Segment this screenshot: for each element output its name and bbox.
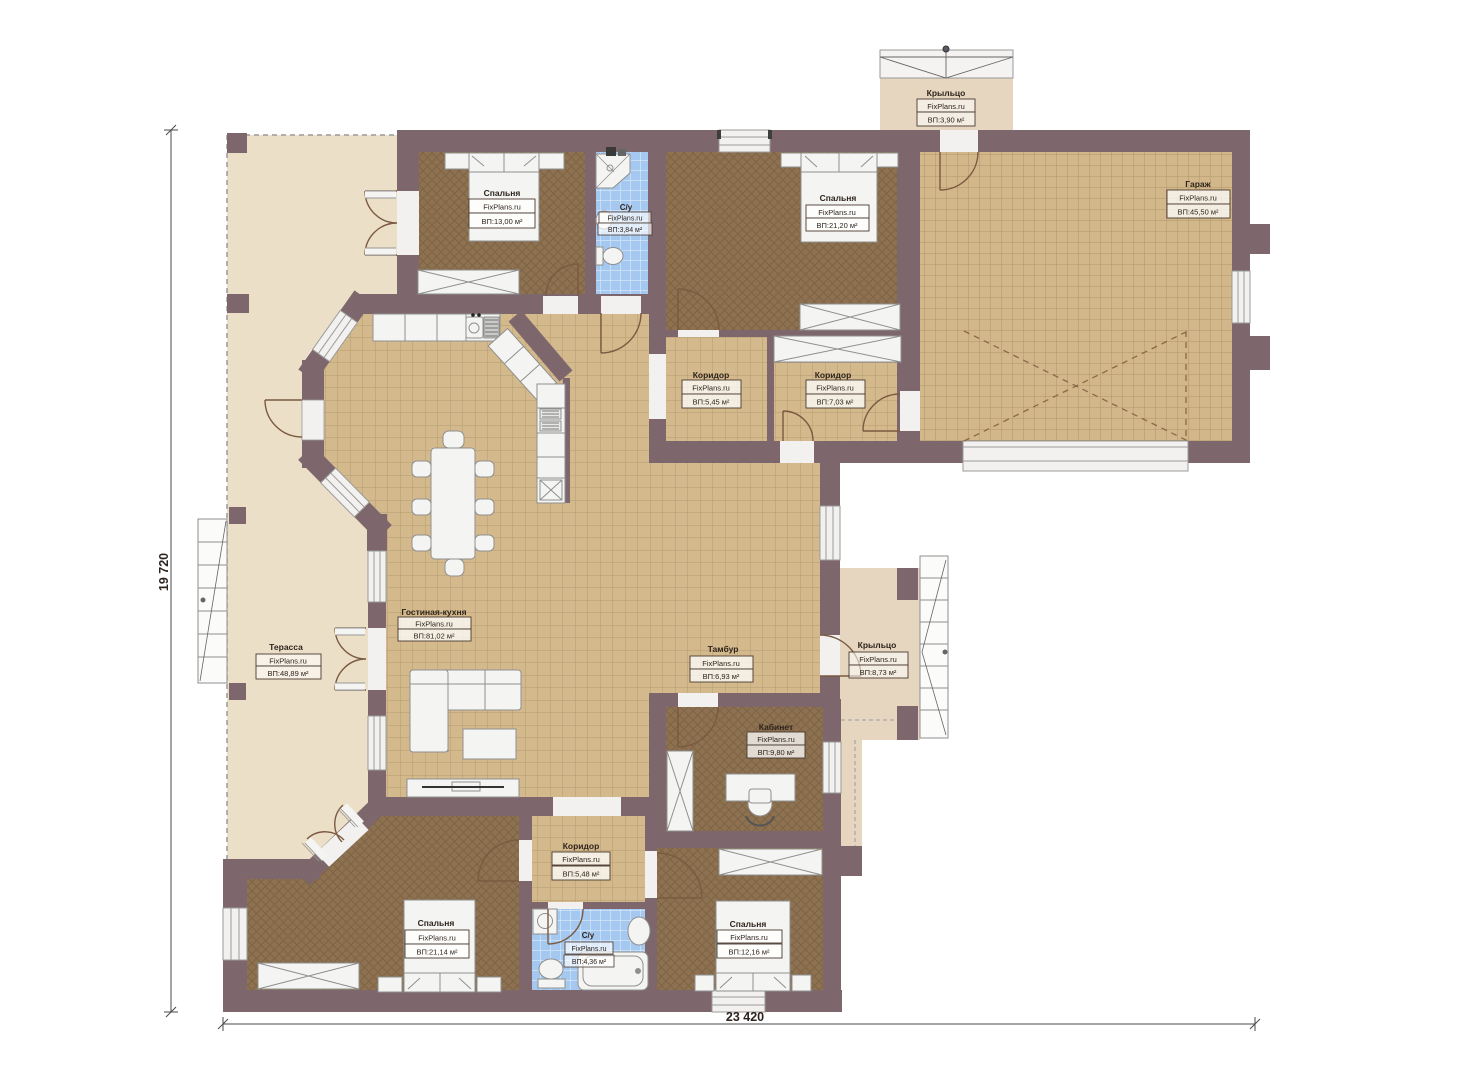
svg-text:ВП:3,90 м²: ВП:3,90 м² [928, 116, 965, 125]
svg-text:ВП:4,36 м²: ВП:4,36 м² [572, 959, 607, 966]
svg-text:FixPlans.ru: FixPlans.ru [607, 216, 642, 223]
svg-text:23 420: 23 420 [726, 1010, 764, 1024]
svg-text:ВП:7,03 м²: ВП:7,03 м² [817, 398, 854, 407]
svg-text:ВП:13,00 м²: ВП:13,00 м² [482, 217, 523, 226]
svg-text:С/у: С/у [620, 203, 633, 212]
svg-text:FixPlans.ru: FixPlans.ru [927, 102, 965, 111]
svg-text:ВП:45,50 м²: ВП:45,50 м² [1178, 208, 1219, 217]
svg-text:FixPlans.ru: FixPlans.ru [1179, 194, 1217, 203]
svg-text:FixPlans.ru: FixPlans.ru [562, 855, 600, 864]
svg-text:Коридор: Коридор [693, 370, 730, 380]
svg-text:FixPlans.ru: FixPlans.ru [818, 208, 856, 217]
svg-text:ВП:5,45 м²: ВП:5,45 м² [693, 398, 730, 407]
svg-text:С/у: С/у [582, 931, 595, 940]
svg-text:FixPlans.ru: FixPlans.ru [859, 655, 897, 664]
svg-text:FixPlans.ru: FixPlans.ru [816, 384, 854, 393]
svg-text:Терасса: Терасса [269, 642, 303, 652]
svg-text:FixPlans.ru: FixPlans.ru [269, 657, 307, 666]
svg-text:Тамбур: Тамбур [708, 644, 739, 654]
svg-text:FixPlans.ru: FixPlans.ru [571, 946, 606, 953]
svg-text:FixPlans.ru: FixPlans.ru [415, 620, 453, 629]
svg-text:FixPlans.ru: FixPlans.ru [702, 659, 740, 668]
svg-text:Спальня: Спальня [418, 918, 455, 928]
svg-text:FixPlans.ru: FixPlans.ru [757, 735, 795, 744]
svg-text:FixPlans.ru: FixPlans.ru [418, 934, 456, 943]
svg-text:Коридор: Коридор [563, 841, 600, 851]
svg-text:ВП:6,93 м²: ВП:6,93 м² [703, 672, 740, 681]
svg-text:FixPlans.ru: FixPlans.ru [483, 203, 521, 212]
svg-text:ВП:9,80 м²: ВП:9,80 м² [758, 748, 795, 757]
svg-text:ВП:48,89 м²: ВП:48,89 м² [268, 669, 309, 678]
svg-text:ВП:81,02 м²: ВП:81,02 м² [414, 632, 455, 641]
svg-text:Гостиная-кухня: Гостиная-кухня [401, 607, 466, 617]
svg-text:ВП:8,73 м²: ВП:8,73 м² [860, 668, 897, 677]
svg-text:ВП:21,20 м²: ВП:21,20 м² [817, 221, 858, 230]
svg-text:19 720: 19 720 [157, 553, 171, 591]
svg-text:ВП:12,16 м²: ВП:12,16 м² [729, 948, 770, 957]
svg-text:ВП:5,48 м²: ВП:5,48 м² [563, 870, 600, 879]
svg-text:ВП:21,14 м²: ВП:21,14 м² [417, 948, 458, 957]
svg-text:Гараж: Гараж [1185, 179, 1211, 189]
svg-text:Крыльцо: Крыльцо [858, 640, 897, 650]
svg-text:Коридор: Коридор [815, 370, 852, 380]
svg-text:FixPlans.ru: FixPlans.ru [692, 384, 730, 393]
svg-text:Кабинет: Кабинет [759, 722, 793, 732]
svg-text:Крыльцо: Крыльцо [927, 88, 966, 98]
svg-text:Спальня: Спальня [484, 188, 521, 198]
svg-text:FixPlans.ru: FixPlans.ru [730, 933, 768, 942]
svg-text:ВП:3,84 м²: ВП:3,84 м² [608, 227, 643, 234]
svg-text:Спальня: Спальня [730, 919, 767, 929]
svg-text:Спальня: Спальня [820, 193, 857, 203]
